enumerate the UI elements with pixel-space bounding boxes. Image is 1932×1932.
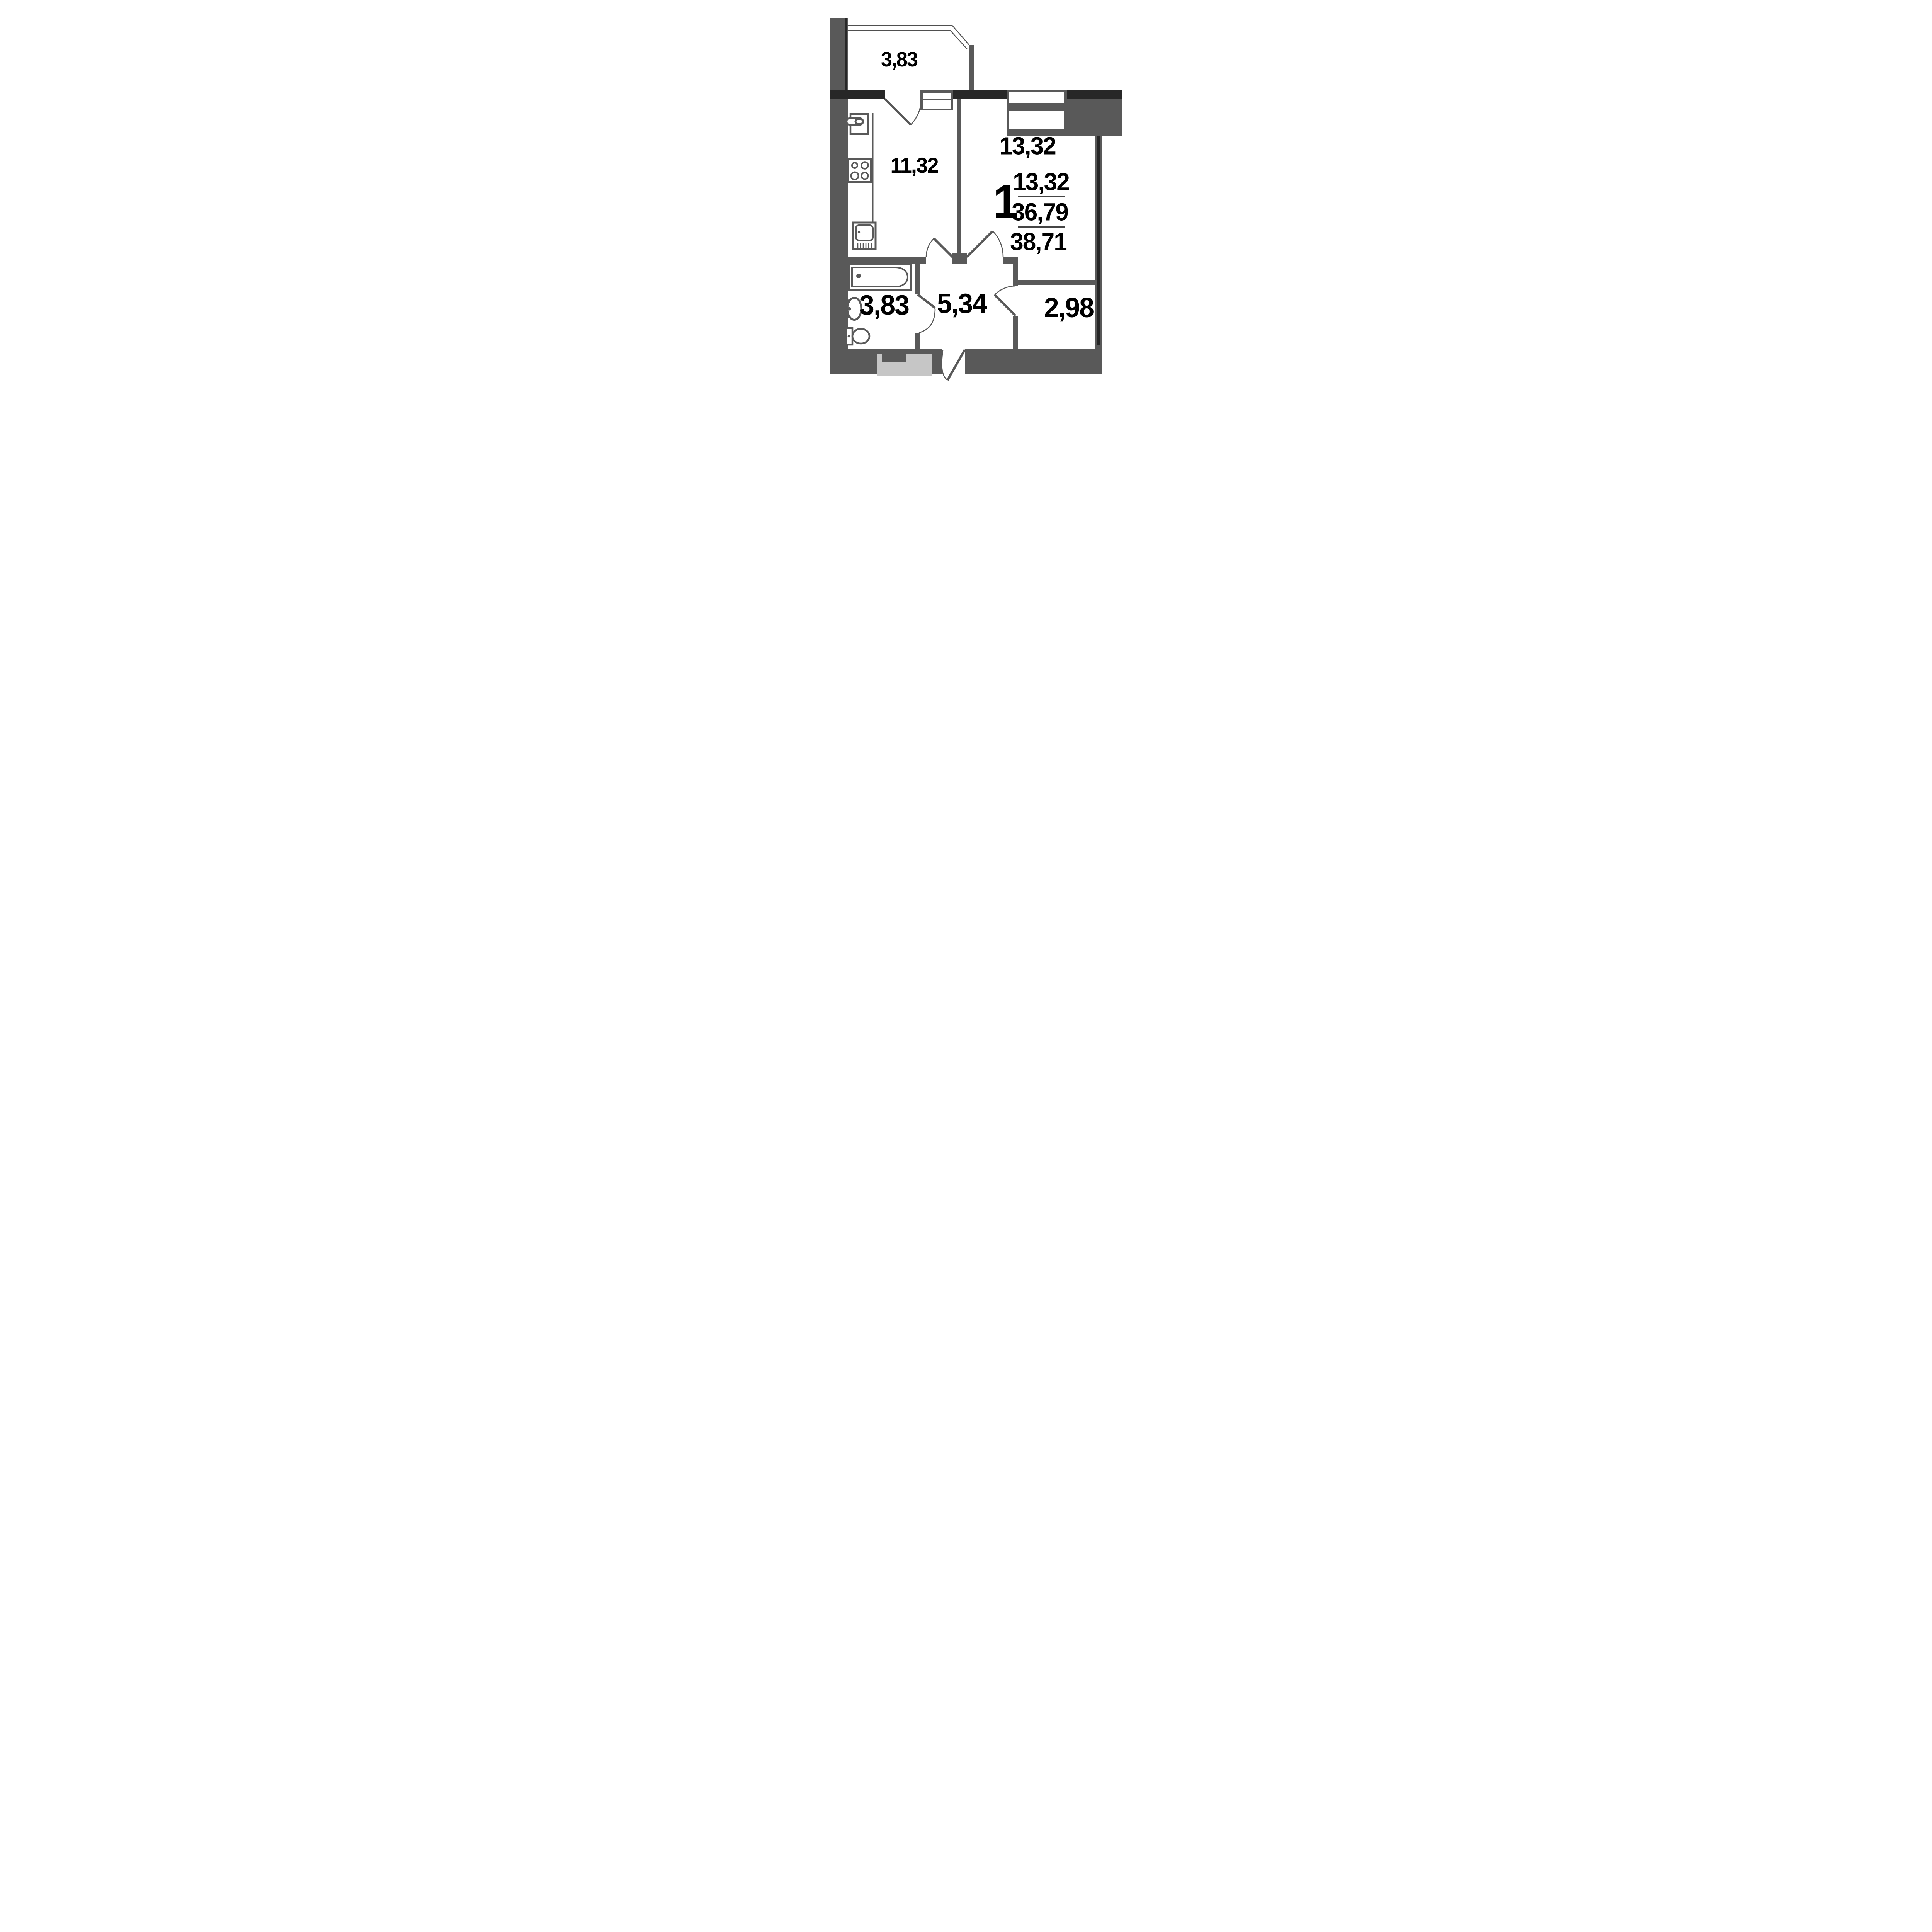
wall-storage-top xyxy=(1013,280,1102,285)
room-label-balcony: 3,83 xyxy=(881,49,917,70)
wall-divider-stub xyxy=(952,253,967,264)
floor-plan: 3,83 11,32 13,32 5,34 3,83 2,98 1 13,32 … xyxy=(773,0,1159,386)
balcony-glazing xyxy=(847,26,969,49)
kitchen-lower-unit xyxy=(853,223,876,249)
balcony-door xyxy=(885,99,921,125)
wall-north-segment-a xyxy=(830,90,885,99)
room-label-bathroom: 3,83 xyxy=(859,291,909,319)
living-window-pane-inner xyxy=(1009,111,1064,129)
summary-living-area: 13,32 xyxy=(1013,169,1069,194)
entrance-door xyxy=(942,350,965,380)
wall-left-dark-strip xyxy=(845,18,847,99)
wall-bottom-right xyxy=(965,349,1102,374)
summary-usable-area: 36,79 xyxy=(1012,199,1068,224)
room-label-hallway: 5,34 xyxy=(937,290,986,318)
bathtub xyxy=(849,264,911,290)
entrance-threshold xyxy=(877,354,932,376)
living-window-pane-outer xyxy=(1009,92,1064,103)
balcony-glazing-inner-line xyxy=(847,31,967,49)
kitchen-sink xyxy=(847,114,868,134)
wall-north-segment-c xyxy=(1067,90,1122,99)
bathtub-drain xyxy=(856,274,861,278)
balcony-glazing-outer-line xyxy=(847,26,969,45)
storage-door xyxy=(995,286,1015,316)
bathroom-door xyxy=(918,294,935,333)
kitchen-stove xyxy=(848,159,871,182)
wall-bath-east-top xyxy=(915,264,920,294)
room-label-living-room: 13,32 xyxy=(999,133,1056,158)
kitchen-window-pane-inner xyxy=(923,100,951,109)
doors xyxy=(885,99,1015,380)
kitchen-door xyxy=(926,238,952,257)
room-label-kitchen: 11,32 xyxy=(890,155,938,176)
summary-total-area: 38,71 xyxy=(1010,229,1066,254)
wall-right-upper-chunk xyxy=(1067,99,1122,136)
wall-kitchen-living-divider xyxy=(957,99,961,257)
floor-plan-drawing xyxy=(773,0,1159,386)
living-room-door xyxy=(967,231,1003,257)
wall-bath-east-bottom xyxy=(915,333,920,349)
threshold-notch xyxy=(882,354,906,362)
wall-storage-west-stub xyxy=(1013,316,1018,349)
toilet xyxy=(846,328,869,345)
kitchen-fixtures xyxy=(847,113,876,249)
room-label-storage: 2,98 xyxy=(1044,294,1094,322)
wall-hall-north-left xyxy=(848,257,926,264)
kitchen-window-pane-outer xyxy=(923,93,951,99)
wall-balcony-right xyxy=(969,45,974,90)
wall-right-dark-strip xyxy=(1097,136,1100,345)
wall-north-segment-b xyxy=(953,90,1007,99)
wall-hall-north-right xyxy=(1003,257,1018,264)
